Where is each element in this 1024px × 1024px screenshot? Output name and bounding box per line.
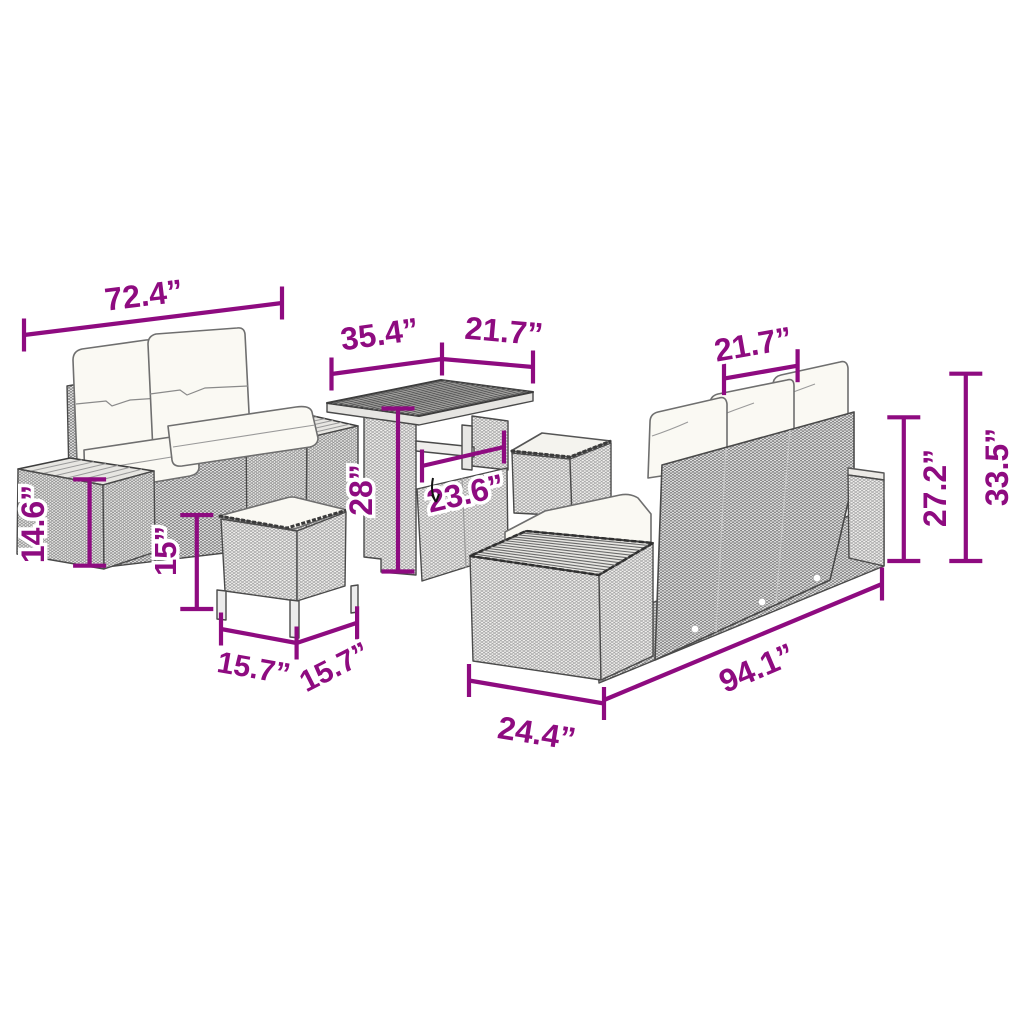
svg-text:15”: 15” <box>148 526 183 576</box>
svg-text:72.4”: 72.4” <box>103 272 185 317</box>
svg-text:15.7”: 15.7” <box>295 636 375 699</box>
svg-text:21.7”: 21.7” <box>463 310 544 353</box>
svg-text:28”: 28” <box>343 464 379 516</box>
svg-text:94.1”: 94.1” <box>714 636 800 700</box>
svg-text:24.4”: 24.4” <box>495 709 578 757</box>
svg-text:27.2”: 27.2” <box>917 449 953 527</box>
svg-text:15.7”: 15.7” <box>215 646 293 691</box>
svg-text:21.7”: 21.7” <box>711 320 794 369</box>
svg-text:35.4”: 35.4” <box>338 311 421 358</box>
svg-text:14.6”: 14.6” <box>15 485 51 563</box>
svg-text:33.5”: 33.5” <box>979 428 1015 506</box>
